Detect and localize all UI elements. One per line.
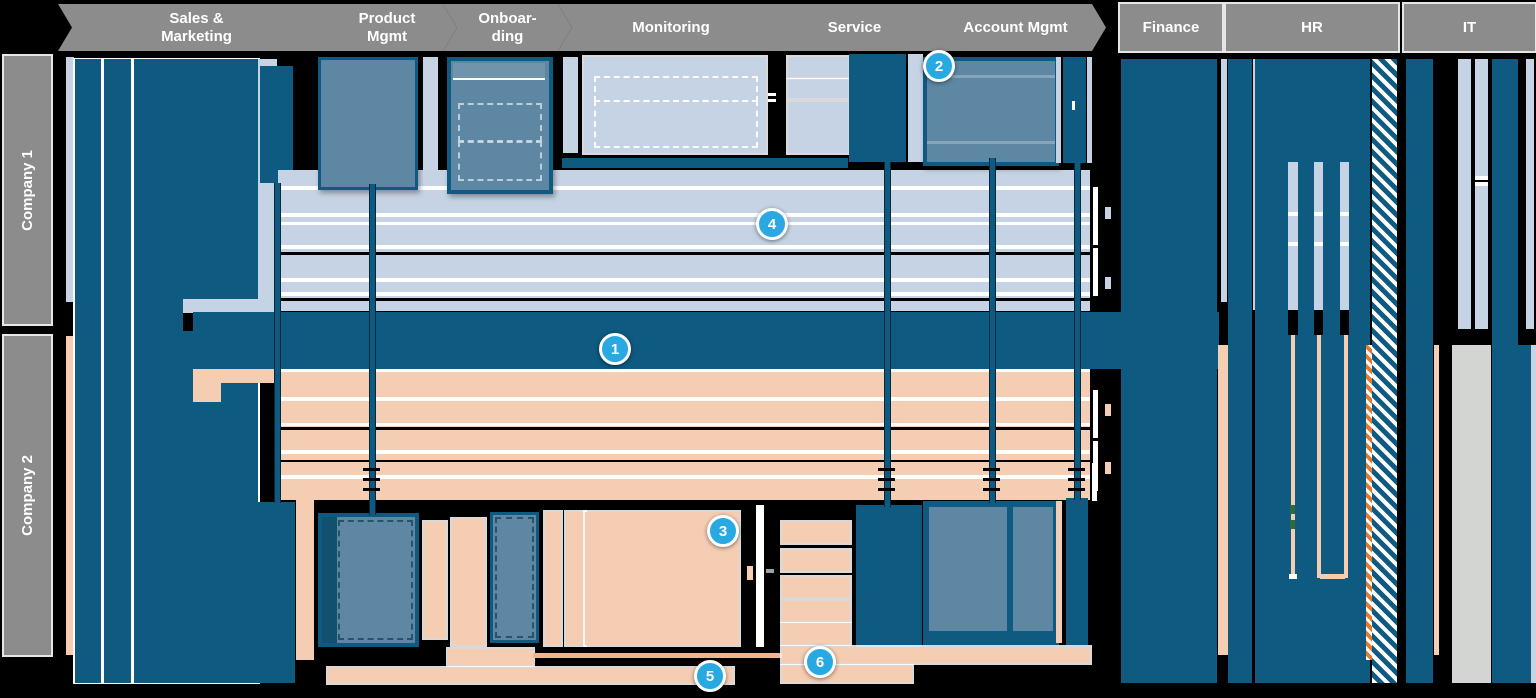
- central-integration-band: [193, 312, 1219, 369]
- stripe-divider: [278, 252, 1090, 255]
- bracket-mark: [1093, 248, 1098, 296]
- connector-line: [369, 184, 376, 515]
- horizontal-connector-bar: [562, 158, 848, 168]
- callout-badge-5: 5: [694, 660, 726, 692]
- row-label-company-2: Company 2: [4, 336, 51, 655]
- row-label-company-1: Company 1: [4, 56, 51, 324]
- connector-line: [884, 162, 891, 507]
- band-notch: [183, 313, 193, 331]
- account-mgmt-system-box-2: [923, 501, 1059, 645]
- bg-strip: [1056, 501, 1062, 643]
- hr-slot-company2: [1344, 335, 1348, 578]
- bg-strip: [1434, 345, 1439, 655]
- department-label: HR: [1301, 19, 1323, 36]
- tick-mark: [1288, 242, 1298, 246]
- connector-tick: [983, 468, 1000, 471]
- tick-mark: [766, 569, 774, 573]
- bottom-strip: [782, 666, 912, 682]
- tick-mark: [1340, 242, 1349, 246]
- connector-tick: [363, 468, 380, 471]
- department-header-it: IT: [1404, 4, 1535, 51]
- connector-tick: [1068, 478, 1085, 481]
- callout-badge-1: 1: [599, 333, 631, 365]
- bracket-mark: [1092, 463, 1097, 501]
- connector-line: [1074, 163, 1081, 500]
- connector-tick: [983, 488, 1000, 491]
- connector-tick: [878, 468, 895, 471]
- department-label: Finance: [1143, 19, 1200, 36]
- tick-mark: [1314, 242, 1323, 246]
- product-mgmt-system-box-2: [318, 513, 419, 647]
- bottom-connector-line: [533, 653, 782, 658]
- onboarding-box-header: [453, 63, 545, 80]
- service-peach-bar: [782, 577, 850, 597]
- bg-strip: [1087, 57, 1092, 163]
- process-step-service: Service: [768, 4, 941, 51]
- process-step-sales-marketing: Sales & Marketing: [58, 4, 335, 51]
- vertical-app-bar: [104, 59, 131, 683]
- connector-line: [274, 183, 281, 503]
- callout-badge-4: 4: [756, 208, 788, 240]
- department-label: IT: [1463, 19, 1476, 36]
- dotted-inner-border: [495, 517, 534, 638]
- tick-mark: [1314, 212, 1323, 216]
- peach-app-bar: [452, 519, 485, 645]
- tick-mark: [768, 93, 776, 96]
- stripe-line: [278, 450, 1090, 454]
- hr-slot: [1340, 162, 1349, 310]
- connector-tick: [1068, 488, 1085, 491]
- tick-mark: [1340, 212, 1349, 216]
- process-step-product-mgmt: Product Mgmt: [317, 4, 457, 51]
- callout-badge-3: 3: [707, 515, 739, 547]
- dotted-placeholder: [458, 141, 542, 181]
- connector-tick: [363, 478, 380, 481]
- service-peach-bar: [782, 601, 850, 621]
- box-panel: [1013, 507, 1053, 631]
- process-step-label: Monitoring: [632, 19, 709, 37]
- vertical-app-bar: [75, 59, 101, 683]
- finance-column: [1121, 59, 1217, 683]
- stripe-line: [278, 245, 1090, 249]
- tick-mark: [1288, 212, 1298, 216]
- service-peach-bar: [782, 624, 850, 644]
- service-peach-bar: [782, 522, 850, 543]
- process-step-label: Service: [828, 19, 881, 37]
- hr-slot-gap: [1314, 310, 1323, 335]
- company-1-label: Company 1: [19, 150, 36, 231]
- dotted-placeholder: [458, 103, 542, 142]
- badge-number: 4: [768, 216, 776, 233]
- connector-tick: [983, 478, 1000, 481]
- bracket-mark: [1093, 390, 1098, 438]
- tick-mark: [1105, 404, 1111, 416]
- tick-mark: [1105, 462, 1111, 474]
- tick-mark: [1320, 574, 1345, 579]
- hr-slot-company2: [1291, 335, 1295, 578]
- bg-strip: [1056, 57, 1061, 163]
- stripe-line: [278, 397, 1090, 401]
- peach-app-bar: [566, 512, 585, 645]
- hr-slot-gap: [1340, 310, 1349, 335]
- green-tick-mark: [1290, 505, 1295, 514]
- dotted-inner-border: [338, 520, 413, 640]
- vertical-app-bar-company2: [258, 502, 295, 683]
- band-elbow-peach: [193, 369, 221, 402]
- vertical-app-bar: [1063, 57, 1086, 163]
- hatched-column-orange-edge: [1366, 345, 1372, 660]
- it-light-column: [1475, 59, 1488, 329]
- connector-tick: [878, 478, 895, 481]
- company-2-label: Company 2: [19, 455, 36, 536]
- service-peach-bar: [782, 550, 850, 571]
- stripe-line: [278, 222, 1090, 225]
- process-step-onboarding: Onboar- ding: [443, 4, 572, 51]
- hr-slot-gap: [1288, 310, 1298, 335]
- it-column-divider: [1472, 180, 1492, 182]
- peach-app-bar: [424, 522, 446, 638]
- hr-app-bar: [1228, 59, 1252, 683]
- bg-strip: [1526, 59, 1534, 329]
- service-app-bar: [788, 57, 848, 77]
- process-landscape-diagram: Sales & Marketing Product Mgmt Onboar- d…: [0, 0, 1536, 698]
- process-step-label: Sales & Marketing: [161, 10, 232, 46]
- hatched-column: [1372, 59, 1397, 683]
- department-header-hr: HR: [1226, 4, 1398, 51]
- it-app-bar: [1406, 59, 1433, 683]
- tick-mark: [1105, 277, 1111, 289]
- box-left-strip: [322, 517, 337, 643]
- tick-mark: [1289, 574, 1297, 579]
- callout-badge-2: 2: [923, 50, 955, 82]
- hr-app-block: [1255, 59, 1370, 683]
- service-app-panel: [788, 102, 848, 153]
- bottom-strip-badge5: [328, 668, 733, 683]
- department-header-finance: Finance: [1120, 4, 1222, 51]
- tick-mark: [1072, 101, 1075, 110]
- it-gray-column: [1452, 345, 1491, 683]
- connector-tick: [363, 488, 380, 491]
- it-light-column: [1458, 59, 1471, 329]
- box-inner-line: [927, 141, 1055, 144]
- bg-strip: [908, 54, 923, 162]
- dotted-placeholder: [594, 100, 758, 148]
- stripe-divider: [278, 427, 1090, 430]
- tick-mark: [1105, 207, 1111, 219]
- service-app-bar: [788, 80, 848, 98]
- stripe-line: [278, 278, 1090, 282]
- it-app-column-company2: [1492, 345, 1531, 683]
- badge-number: 6: [816, 654, 824, 671]
- badge-number: 2: [935, 58, 943, 75]
- stripe-line: [278, 423, 1090, 426]
- dotted-placeholder: [594, 76, 758, 102]
- onboarding-system-box: [447, 57, 553, 194]
- hanging-app-bar: [260, 66, 293, 183]
- peach-app-bar: [545, 512, 561, 645]
- integration-band-company2: [278, 372, 1090, 500]
- vertical-app-bar: [1066, 498, 1088, 645]
- tick-mark: [747, 566, 753, 580]
- connector-tick: [1068, 468, 1085, 471]
- bg-strip: [1531, 345, 1536, 683]
- bottom-strip: [448, 649, 533, 665]
- white-divider-bar: [756, 505, 764, 647]
- stripe-line: [278, 213, 1090, 217]
- bracket-mark: [1093, 187, 1098, 245]
- process-step-monitoring: Monitoring: [558, 4, 784, 51]
- green-tick-mark: [1290, 520, 1295, 529]
- callout-badge-6: 6: [804, 646, 836, 678]
- tick-mark: [768, 99, 776, 102]
- process-step-account-mgmt: Account Mgmt: [925, 4, 1106, 51]
- integration-band-company1: [278, 170, 1090, 311]
- hr-slot: [1288, 162, 1298, 310]
- hr-slot: [1314, 162, 1323, 310]
- onboarding-system-box-2: [490, 512, 539, 643]
- box-panel: [929, 507, 1007, 631]
- monitoring-panel: [584, 57, 766, 153]
- product-mgmt-system-box: [318, 57, 418, 190]
- stripe-line: [278, 292, 1090, 296]
- stripe-divider: [278, 298, 1090, 301]
- badge-number: 5: [706, 668, 714, 685]
- process-step-label: Account Mgmt: [963, 19, 1067, 37]
- bg-strip: [423, 57, 438, 183]
- bg-strip: [563, 57, 578, 153]
- process-step-label: Onboar- ding: [478, 10, 536, 46]
- badge-number: 3: [719, 523, 727, 540]
- hr-slot-company2: [1317, 335, 1321, 578]
- bg-strip: [1221, 59, 1227, 302]
- stripe-divider: [278, 460, 1090, 462]
- stripe-line: [278, 475, 1090, 479]
- service-app-block-2: [856, 505, 922, 647]
- badge-number: 1: [611, 341, 619, 358]
- connector-line: [989, 158, 996, 503]
- service-app-block: [849, 54, 906, 162]
- connector-tick: [878, 488, 895, 491]
- process-step-label: Product Mgmt: [359, 10, 416, 46]
